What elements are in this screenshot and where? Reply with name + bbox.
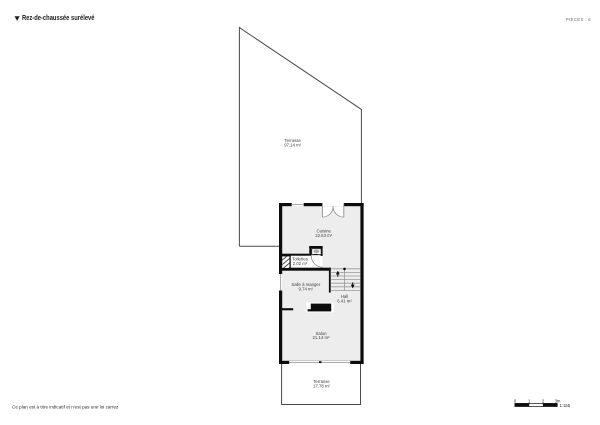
svg-text:97.14 m²: 97.14 m² [284,143,302,148]
svg-text:2.02 m²: 2.02 m² [293,261,308,266]
svg-text:17.78 m²: 17.78 m² [313,384,331,389]
svg-text:Ce plan est à titre indicatif: Ce plan est à titre indicatif et n'est p… [12,405,119,410]
svg-text:9.74 m²: 9.74 m² [299,286,314,291]
svg-text:6.41 m²: 6.41 m² [337,298,352,303]
svg-text:Rez-de-chaussée surélevé: Rez-de-chaussée surélevé [22,15,95,22]
svg-text:21.14 m²: 21.14 m² [313,335,331,340]
svg-text:1:155: 1:155 [560,403,571,408]
svg-text:PIÈCES : 6: PIÈCES : 6 [566,17,591,22]
svg-text:22.53 m²: 22.53 m² [315,233,333,238]
